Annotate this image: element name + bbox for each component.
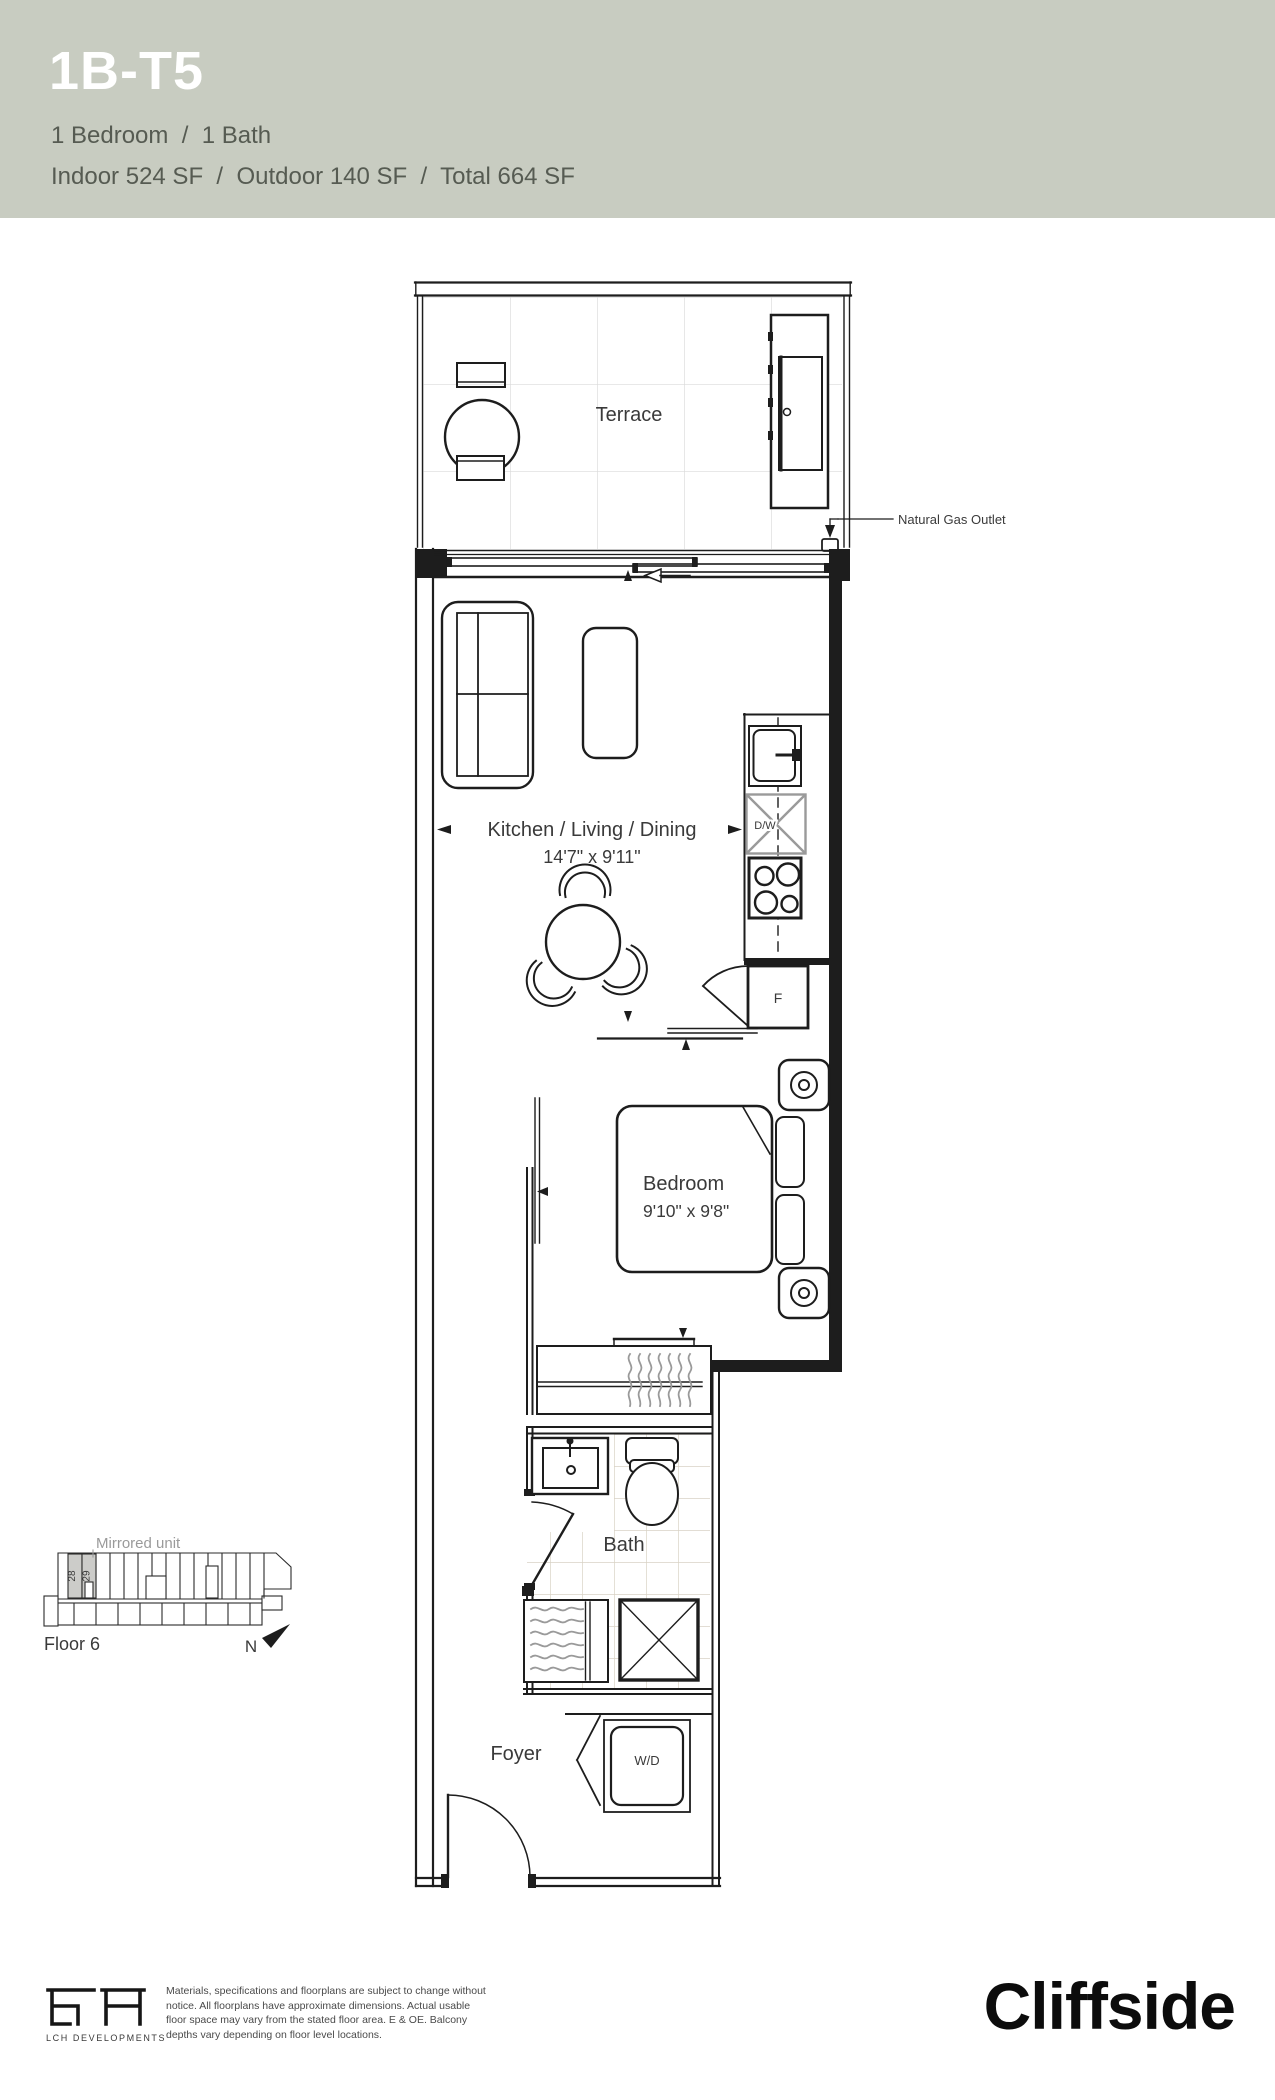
cooktop bbox=[749, 858, 801, 918]
bath-label: Bath bbox=[603, 1534, 644, 1556]
entry-door bbox=[448, 1795, 530, 1877]
linen-closet bbox=[524, 1600, 608, 1682]
brand-wordmark: Cliffside bbox=[984, 1968, 1235, 2044]
terrace-label: Terrace bbox=[596, 404, 663, 426]
nightstand-lamp bbox=[779, 1268, 829, 1318]
toilet bbox=[626, 1438, 678, 1525]
lch-logo-text: LCH DEVELOPMENTS bbox=[46, 2033, 166, 2043]
dishwasher: D/W bbox=[747, 795, 806, 854]
keyplan-unit-28-label: 28 bbox=[67, 1570, 78, 1582]
mirrored-unit-label: Mirrored unit bbox=[96, 1535, 181, 1552]
living-room bbox=[442, 602, 657, 1016]
laundry-bifold-door bbox=[577, 1716, 600, 1805]
floorplan-drawing: Terrace Natural Gas Outlet bbox=[0, 0, 1275, 2100]
bath-vanity-sink bbox=[532, 1438, 608, 1495]
washer-dryer: W/D bbox=[604, 1720, 690, 1812]
bathroom: Bath bbox=[522, 1427, 712, 1694]
slide-direction-arrow bbox=[624, 570, 632, 581]
bedroom-closet bbox=[537, 1328, 711, 1414]
lch-logo-icon bbox=[48, 1990, 144, 2024]
foyer-label: Foyer bbox=[490, 1743, 541, 1765]
bedroom-label: Bedroom bbox=[643, 1173, 724, 1195]
gas-outlet-label: Natural Gas Outlet bbox=[898, 512, 1006, 527]
nightstand-lamp bbox=[779, 1060, 829, 1110]
fridge: F bbox=[703, 966, 808, 1028]
sofa bbox=[442, 602, 533, 788]
dishwasher-label: D/W bbox=[754, 820, 776, 832]
pillow bbox=[776, 1117, 804, 1187]
pillow bbox=[776, 1195, 804, 1264]
bedroom-dims: 9'10" x 9'8" bbox=[643, 1201, 729, 1221]
foyer-laundry: W/D Foyer bbox=[448, 1714, 712, 1877]
fridge-label: F bbox=[774, 990, 783, 1006]
terrace: Terrace bbox=[415, 282, 851, 549]
floor-label: Floor 6 bbox=[44, 1634, 100, 1654]
kitchen-sink bbox=[749, 726, 801, 786]
disclaimer-text: Materials, specifications and floorplans… bbox=[166, 1984, 486, 2042]
kitchen: D/W F bbox=[703, 714, 829, 1028]
washer-dryer-label: W/D bbox=[634, 1753, 659, 1768]
bbq-grill bbox=[768, 315, 828, 508]
floorplan-page: 1B-T5 1 Bedroom / 1 Bath Indoor 524 SF /… bbox=[0, 0, 1275, 2100]
kld-room-label: Kitchen / Living / Dining 14'7" x 9'11" bbox=[437, 819, 742, 867]
accent-chair bbox=[583, 628, 637, 758]
north-arrow-icon: N bbox=[245, 1624, 290, 1656]
kld-dims: 14'7" x 9'11" bbox=[543, 847, 640, 867]
keyplan: 28 29 Mirrored unit Floor 6 N bbox=[44, 1535, 291, 1656]
keyplan-unit-29-label: 29 bbox=[82, 1570, 93, 1582]
north-label: N bbox=[245, 1637, 257, 1656]
bedroom: Bedroom 9'10" x 9'8" bbox=[527, 1011, 829, 1414]
shower bbox=[620, 1600, 698, 1680]
closet-hangers bbox=[629, 1354, 692, 1406]
dining-table-set bbox=[516, 864, 657, 1016]
kld-label: Kitchen / Living / Dining bbox=[487, 819, 696, 841]
terrace-sliding-door bbox=[416, 549, 829, 582]
